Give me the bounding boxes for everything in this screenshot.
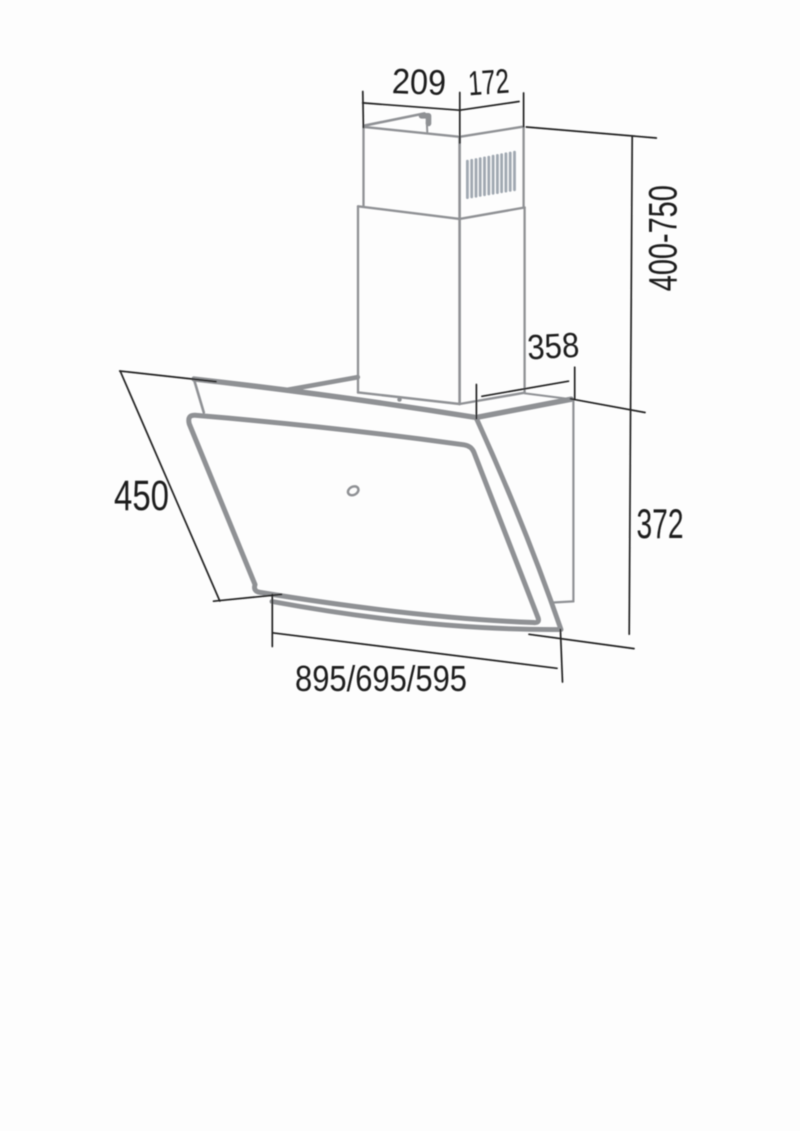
svg-text:400-750: 400-750	[642, 185, 686, 291]
svg-text:450: 450	[114, 472, 169, 520]
svg-text:372: 372	[637, 500, 684, 547]
svg-text:172: 172	[467, 63, 511, 104]
svg-text:895/695/595: 895/695/595	[295, 658, 467, 699]
svg-text:209: 209	[391, 61, 446, 103]
svg-text:358: 358	[526, 326, 580, 368]
